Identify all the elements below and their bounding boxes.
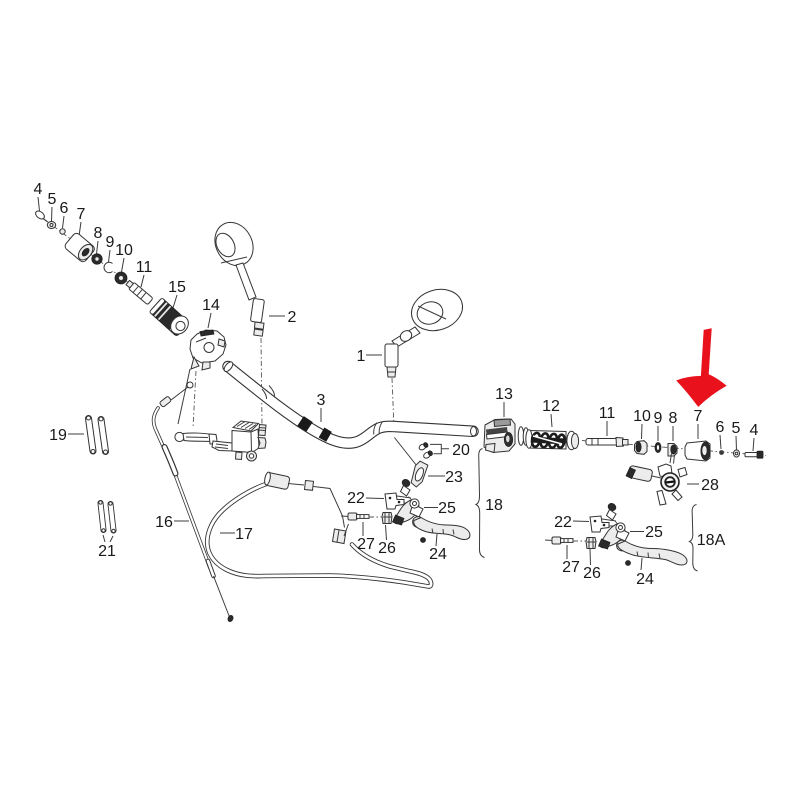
svg-text:23: 23	[445, 469, 463, 486]
svg-text:25: 25	[438, 500, 456, 517]
svg-text:22: 22	[554, 514, 572, 531]
svg-text:15: 15	[168, 279, 186, 296]
svg-text:13: 13	[495, 386, 513, 403]
svg-text:27: 27	[562, 559, 580, 576]
svg-text:28: 28	[701, 477, 719, 494]
svg-text:6: 6	[60, 200, 69, 217]
svg-text:16: 16	[155, 514, 173, 531]
svg-text:5: 5	[48, 191, 57, 208]
svg-text:12: 12	[542, 398, 560, 415]
svg-text:5: 5	[732, 420, 741, 437]
svg-text:6: 6	[716, 419, 725, 436]
svg-text:1: 1	[357, 348, 366, 365]
svg-text:20: 20	[452, 442, 470, 459]
svg-text:24: 24	[429, 546, 447, 563]
svg-text:18A: 18A	[697, 532, 726, 549]
svg-text:9: 9	[654, 410, 663, 427]
svg-text:3: 3	[317, 392, 326, 409]
svg-text:7: 7	[77, 206, 86, 223]
svg-text:7: 7	[694, 408, 703, 425]
svg-text:26: 26	[378, 540, 396, 557]
svg-text:25: 25	[645, 524, 663, 541]
svg-text:21: 21	[98, 543, 116, 560]
svg-text:2: 2	[288, 309, 297, 326]
svg-text:14: 14	[202, 297, 220, 314]
svg-text:8: 8	[669, 410, 678, 427]
svg-text:19: 19	[49, 427, 67, 444]
svg-text:18: 18	[485, 497, 503, 514]
svg-text:10: 10	[633, 408, 651, 425]
svg-text:4: 4	[34, 181, 43, 198]
svg-text:24: 24	[636, 571, 654, 588]
svg-text:4: 4	[750, 422, 759, 439]
svg-text:11: 11	[136, 259, 153, 276]
svg-text:9: 9	[106, 234, 115, 251]
svg-text:26: 26	[583, 565, 601, 582]
svg-text:17: 17	[235, 526, 253, 543]
svg-text:8: 8	[94, 225, 103, 242]
svg-text:10: 10	[115, 242, 133, 259]
svg-text:11: 11	[599, 405, 616, 422]
svg-text:22: 22	[347, 490, 365, 507]
svg-text:27: 27	[357, 536, 375, 553]
